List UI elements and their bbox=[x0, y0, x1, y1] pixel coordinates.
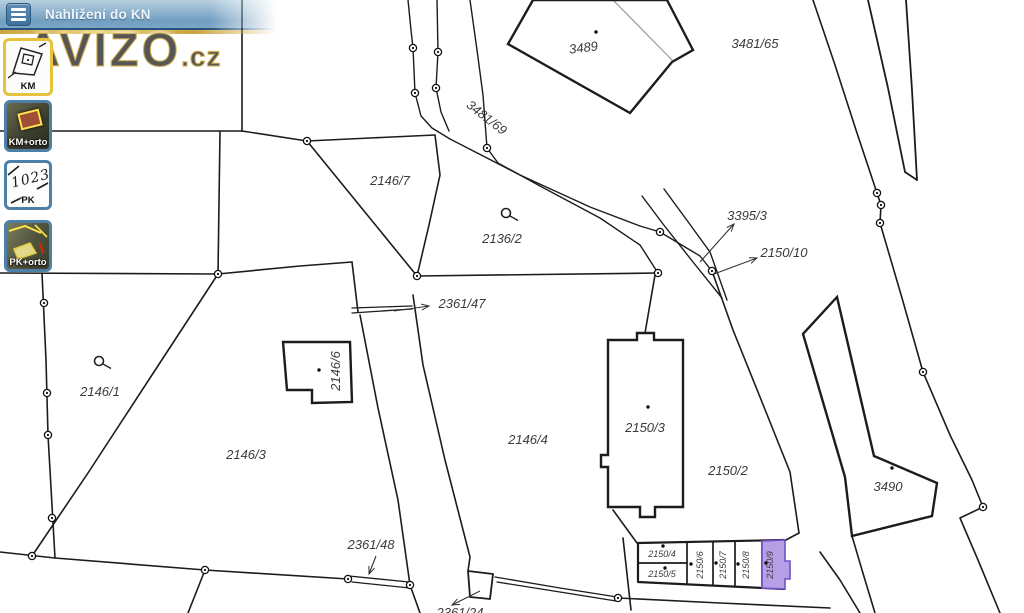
parcel-label: 3481/69 bbox=[464, 97, 510, 138]
landuse-symbol-tail bbox=[103, 364, 111, 369]
app-title: Nahlížení do KN bbox=[45, 7, 151, 22]
boundary-line bbox=[352, 262, 358, 312]
boundary-point-center bbox=[414, 92, 416, 94]
boundary-point-center bbox=[982, 506, 984, 508]
boundary-line bbox=[417, 273, 658, 276]
parcel-label: 2361/24 bbox=[436, 605, 484, 613]
boundary-point-center bbox=[416, 275, 418, 277]
layer-button-pk-orto[interactable]: PK+orto bbox=[4, 220, 52, 272]
boundary-line bbox=[408, 0, 712, 271]
menu-hamburger-icon[interactable] bbox=[6, 3, 31, 26]
knviewer-screen: 34893481/653481/692146/72136/23395/32150… bbox=[0, 0, 1024, 613]
watermark-tld: .cz bbox=[181, 41, 221, 72]
parcel-label: 2150/2 bbox=[707, 463, 749, 478]
boundary-point-center bbox=[31, 555, 33, 557]
boundary-point-center bbox=[880, 204, 882, 206]
parcel-label: 2136/2 bbox=[481, 231, 523, 246]
parcel-label: 2146/3 bbox=[225, 447, 267, 462]
boundary-line bbox=[664, 189, 727, 300]
parcel-label: 2150/7 bbox=[718, 550, 728, 580]
parcel-label: 3481/65 bbox=[732, 36, 780, 51]
landuse-symbol-tail bbox=[510, 216, 518, 221]
boundary-point-center bbox=[922, 371, 924, 373]
layer-button-km[interactable]: KM bbox=[3, 38, 53, 96]
parcel-label: 2150/4 bbox=[647, 549, 676, 559]
boundary-point-center bbox=[657, 272, 659, 274]
parcel-label: 2146/1 bbox=[79, 384, 120, 399]
boundary-point-center bbox=[435, 87, 437, 89]
boundary-line bbox=[242, 131, 435, 141]
boundary-point-center bbox=[879, 222, 881, 224]
boundary-point-center bbox=[51, 517, 53, 519]
boundary-line bbox=[495, 577, 617, 597]
parcel-label: 2150/9 bbox=[765, 551, 775, 580]
boundary-line bbox=[352, 306, 412, 308]
boundary-point-center bbox=[617, 597, 619, 599]
boundary-line bbox=[905, 172, 917, 180]
boundary-line bbox=[813, 0, 983, 507]
parcel-label: 2150/6 bbox=[695, 551, 705, 580]
boundary-line bbox=[0, 273, 218, 274]
boundary-line bbox=[413, 295, 470, 571]
parcel-label: 2146/4 bbox=[507, 432, 548, 447]
boundary-line bbox=[218, 262, 352, 274]
label-arrow bbox=[700, 224, 734, 262]
boundary-line bbox=[960, 507, 1000, 613]
layer-button-pk-label: PK bbox=[7, 195, 49, 207]
boundary-line bbox=[32, 274, 218, 556]
boundary-point-center bbox=[409, 584, 411, 586]
parcel-centroid-dot bbox=[890, 466, 893, 469]
boundary-point-center bbox=[47, 434, 49, 436]
parcel-centroid-dot bbox=[646, 405, 649, 408]
layer-button-km-orto[interactable]: KM+orto bbox=[4, 100, 52, 152]
parcel-label: 2150/3 bbox=[624, 420, 666, 435]
boundary-point-center bbox=[412, 47, 414, 49]
building-outline bbox=[508, 0, 693, 113]
avizo-watermark-logo: AVIZO.cz bbox=[26, 22, 222, 77]
parcel-label: 2361/48 bbox=[347, 537, 396, 552]
boundary-line bbox=[613, 510, 637, 543]
boundary-point-center bbox=[204, 569, 206, 571]
km-map-thumbnail-icon bbox=[6, 41, 50, 83]
boundary-line bbox=[613, 0, 672, 60]
boundary-line bbox=[868, 0, 905, 172]
boundary-line bbox=[436, 0, 449, 131]
orto-parcel-highlight-icon bbox=[17, 109, 42, 131]
layer-button-km-label: KM bbox=[6, 81, 50, 93]
boundary-point-center bbox=[486, 147, 488, 149]
boundary-point-center bbox=[217, 273, 219, 275]
boundary-point-center bbox=[659, 231, 661, 233]
boundary-point-center bbox=[711, 270, 713, 272]
parcel-label: 3490 bbox=[874, 479, 904, 494]
layer-button-pk[interactable]: 1023 PK bbox=[4, 160, 52, 210]
boundary-line bbox=[618, 598, 830, 608]
boundary-line bbox=[906, 0, 917, 180]
parcel-label: 2146/7 bbox=[369, 173, 411, 188]
parcel-label: 2150/8 bbox=[741, 551, 751, 580]
boundary-point-center bbox=[43, 302, 45, 304]
parcel-centroid-dot bbox=[661, 544, 664, 547]
parcel-label: 2361/47 bbox=[438, 296, 487, 311]
building-outline bbox=[803, 297, 937, 536]
layer-button-km-orto-label: KM+orto bbox=[7, 137, 49, 149]
boundary-line bbox=[852, 536, 875, 613]
boundary-line bbox=[352, 582, 410, 588]
parcel-centroid-dot bbox=[736, 562, 739, 565]
parcel-label: 3395/3 bbox=[727, 208, 768, 223]
landuse-symbol-icon bbox=[95, 357, 104, 366]
cadastral-map-canvas[interactable]: 34893481/653481/692146/72136/23395/32150… bbox=[0, 0, 1024, 613]
boundary-point-center bbox=[306, 140, 308, 142]
parcel-centroid-dot bbox=[594, 30, 597, 33]
layer-button-pk-orto-label: PK+orto bbox=[7, 257, 49, 269]
boundary-line bbox=[497, 582, 616, 601]
boundary-point-center bbox=[876, 192, 878, 194]
boundary-line bbox=[349, 576, 409, 582]
label-arrow bbox=[369, 556, 376, 574]
boundary-line bbox=[188, 570, 205, 613]
boundary-line bbox=[712, 271, 799, 533]
boundary-line bbox=[784, 533, 799, 541]
landuse-symbol-icon bbox=[502, 209, 511, 218]
boundary-line bbox=[820, 552, 860, 613]
boundary-point-center bbox=[347, 578, 349, 580]
boundary-line bbox=[645, 275, 655, 333]
boundary-line bbox=[307, 141, 417, 276]
boundary-line bbox=[218, 131, 220, 274]
boundary-point-center bbox=[46, 392, 48, 394]
parcel-label: 2150/10 bbox=[760, 245, 809, 260]
boundary-line bbox=[0, 552, 348, 579]
parcel-label: 2146/6 bbox=[328, 350, 343, 392]
parcel-centroid-dot bbox=[689, 562, 692, 565]
parcel-label: 2150/5 bbox=[647, 569, 677, 579]
boundary-line bbox=[410, 585, 420, 613]
parcel-centroid-dot bbox=[317, 368, 320, 371]
label-arrow bbox=[714, 258, 757, 274]
parcel-label: 3489 bbox=[568, 38, 599, 56]
boundary-line bbox=[417, 135, 440, 276]
boundary-point-center bbox=[437, 51, 439, 53]
